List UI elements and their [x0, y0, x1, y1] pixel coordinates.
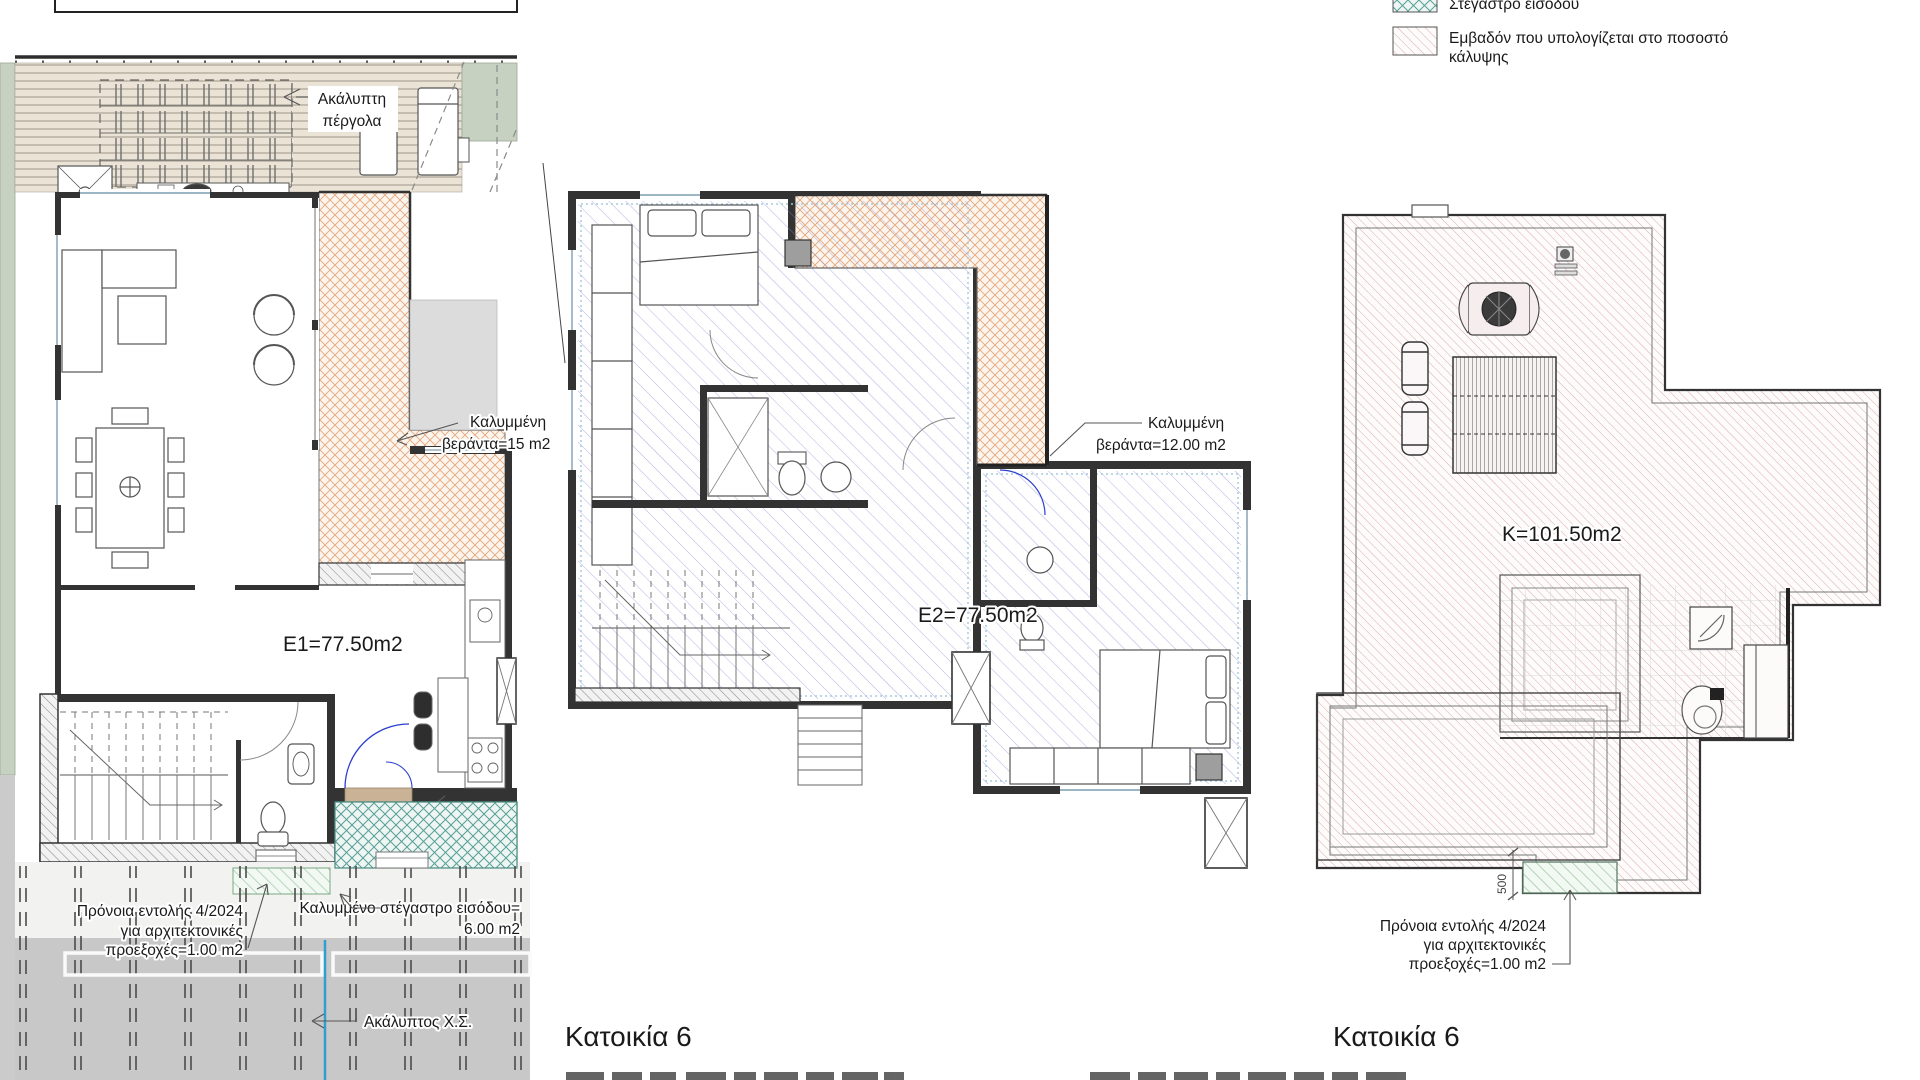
nightstand	[1196, 754, 1222, 780]
exterior-steps	[798, 705, 862, 785]
roof-provision-line1: Πρόνοια εντολής 4/2024	[1380, 918, 1547, 935]
armchair	[254, 295, 294, 335]
canopy-label-line1: Καλυμμένο στέγαστρο εισόδου=	[300, 900, 520, 917]
roof-provision-line2: για αρχιτεκτονικές	[1424, 937, 1546, 954]
legend: Στέγαστρο εισόδου Εμβαδόν που υπολογίζετ…	[1393, 0, 1728, 66]
house-title: Κατοικία 6	[565, 1021, 692, 1052]
veranda12-label-line1: Καλυμμένη	[1148, 415, 1224, 432]
legend-canopy-label: Στέγαστρο εισόδου	[1449, 0, 1579, 13]
ac-unit	[1459, 283, 1539, 335]
veranda-label-line2: βεράντα=15 m2	[442, 436, 550, 453]
yard-tick-pattern	[15, 866, 530, 1080]
provision-label-line3: προεξοχές=1.00 m2	[106, 942, 243, 959]
legend-item-coverage: Εμβαδόν που υπολογίζεται στο ποσοστό κάλ…	[1393, 27, 1728, 66]
architectural-drawing-sheet: 1600 Ακάλυπτη πέργολα Καλυμμένη βεράντα=…	[0, 0, 1920, 1080]
roof-area-label: K=101.50m2	[1502, 523, 1622, 546]
garden-patch-topright	[462, 63, 517, 141]
pergola-label-line2: πέργολα	[323, 113, 382, 130]
kitchen-island	[438, 678, 468, 772]
sink	[1027, 547, 1053, 573]
provision-dim-text: 500	[1495, 874, 1509, 894]
pink-hatch-swatch	[1393, 27, 1437, 55]
ground-floor-area-label: E1=77.50m2	[283, 633, 403, 656]
yard-label: Ακάλυπτος Χ.Σ.	[364, 1014, 472, 1031]
legend-item-canopy: Στέγαστρο εισόδου	[1393, 0, 1579, 13]
cut-off-text	[1090, 1072, 1406, 1080]
upper-floor-overlay-hatch	[578, 201, 971, 699]
pergola	[100, 80, 292, 187]
legend-coverage-label-line2: κάλυψης	[1449, 49, 1509, 66]
provision-label-line2: για αρχιτεκτονικές	[121, 923, 243, 940]
duct	[785, 240, 811, 266]
garden-strip-left	[0, 63, 15, 775]
pergola-label-line1: Ακάλυπτη	[318, 91, 386, 108]
site-plan-drawing: 1600 Ακάλυπτη πέργολα Καλυμμένη βεράντα=…	[0, 0, 1920, 1080]
veranda-label-line1: Καλυμμένη	[470, 414, 546, 431]
provision-label-line1: Πρόνοια εντολής 4/2024	[77, 903, 244, 920]
legend-coverage-label-line1: Εμβαδόν που υπολογίζεται στο ποσοστό	[1449, 30, 1728, 47]
wardrobe	[592, 225, 632, 565]
first-floor-plan: E2=77.50m2 Καλυμμένη βεράντα=12.00 m2 Κα…	[543, 163, 1252, 1080]
provision-zone-hatch	[1523, 862, 1617, 893]
gray-strip-left	[0, 775, 15, 1080]
ground-floor-plan: 1600 Ακάλυπτη πέργολα Καλυμμένη βεράντα=…	[0, 0, 550, 1080]
roof-provision-line3: προεξοχές=1.00 m2	[1409, 956, 1546, 973]
roof-outline	[1317, 215, 1880, 893]
skylight	[1690, 607, 1732, 649]
adjacent-terrace-gray	[410, 300, 497, 430]
first-floor-area-label: E2=77.50m2	[918, 604, 1038, 627]
closet	[1010, 748, 1190, 784]
entry-step	[376, 852, 428, 868]
armchair	[254, 345, 294, 385]
toilet	[779, 461, 805, 495]
cut-off-structure	[55, 0, 517, 12]
sink	[821, 462, 851, 492]
bar-stool	[414, 724, 432, 750]
solar-panel	[1453, 357, 1556, 473]
veranda12-label-line2: βεράντα=12.00 m2	[1096, 437, 1226, 454]
sofa	[1744, 645, 1788, 738]
wc-toilet	[261, 802, 285, 834]
canopy-label-line2: 6.00 m2	[464, 921, 520, 938]
house-title: Κατοικία 6	[1333, 1021, 1460, 1052]
teal-crosshatch-swatch	[1393, 0, 1437, 12]
cut-off-text	[566, 1072, 904, 1080]
roof-hatch-access	[1412, 205, 1448, 217]
bar-stool	[414, 692, 432, 718]
entrance-door	[345, 788, 412, 802]
